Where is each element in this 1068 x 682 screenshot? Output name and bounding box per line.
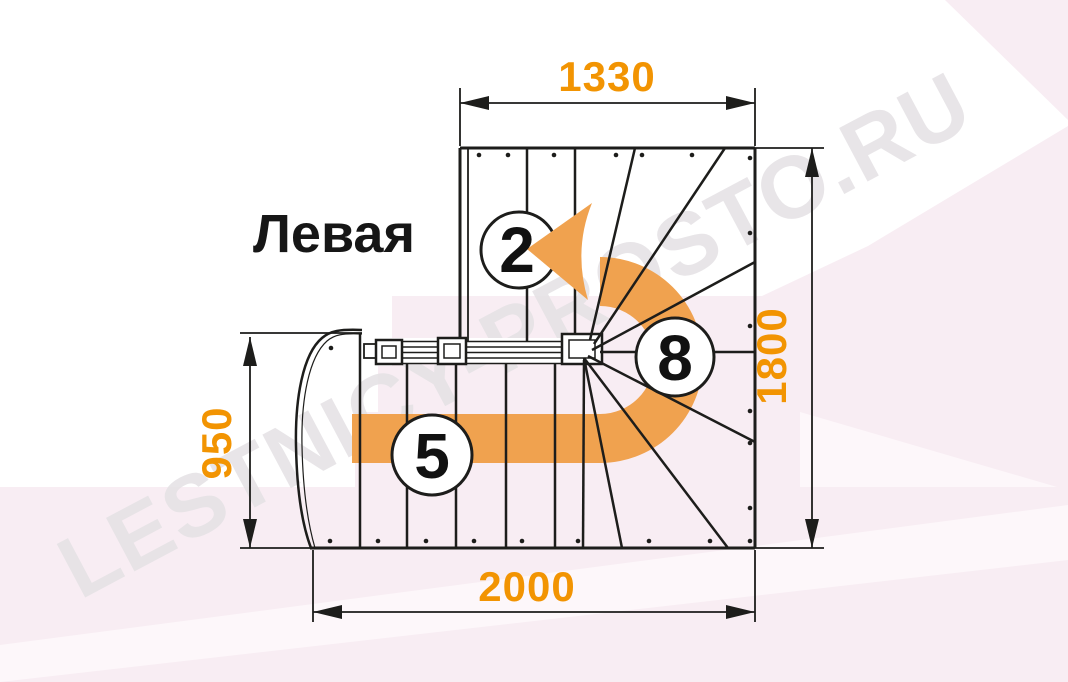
plan-title: Левая [253,204,415,264]
step-count-lower: 5 [414,420,450,492]
step-count-winder: 8 [657,322,693,394]
staircase-plan-drawing: LESTNICY-PROSTO.RU [0,0,1068,682]
dimension-label-top: 1330 [558,53,655,100]
dimension-top: 1330 [460,53,755,146]
dimension-label-left: 950 [193,406,240,479]
step-circle-winder: 8 [636,318,714,396]
dimension-label-right: 1800 [748,307,795,404]
staircase-plan-page: LESTNICY-PROSTO.RU [0,0,1068,682]
dimension-label-bottom: 2000 [478,563,575,610]
step-count-upper: 2 [499,214,535,286]
step-circle-lower: 5 [392,415,472,495]
